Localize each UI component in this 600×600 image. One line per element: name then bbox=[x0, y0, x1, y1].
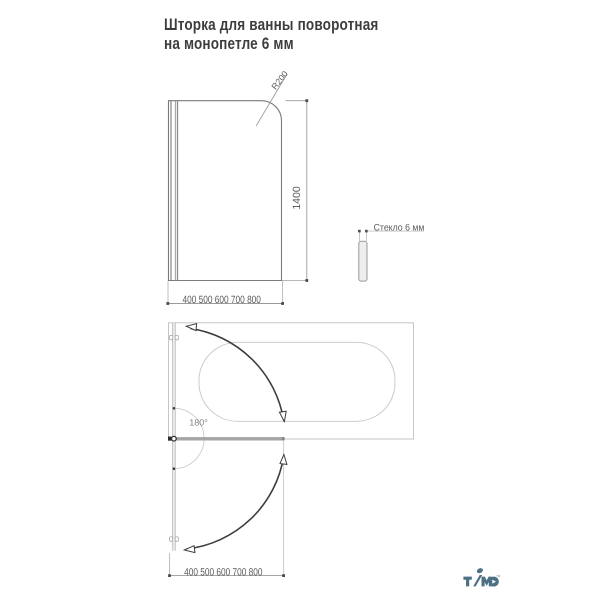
svg-text:400 500 600 700 800: 400 500 600 700 800 bbox=[184, 566, 263, 578]
svg-text:1400: 1400 bbox=[291, 186, 303, 210]
svg-text:TM: TM bbox=[496, 574, 501, 578]
svg-text:400 500 600 700 800: 400 500 600 700 800 bbox=[182, 294, 261, 306]
svg-text:Стекло 6 мм: Стекло 6 мм bbox=[374, 223, 425, 234]
svg-text:R200: R200 bbox=[269, 69, 290, 92]
svg-text:180°: 180° bbox=[189, 418, 208, 428]
